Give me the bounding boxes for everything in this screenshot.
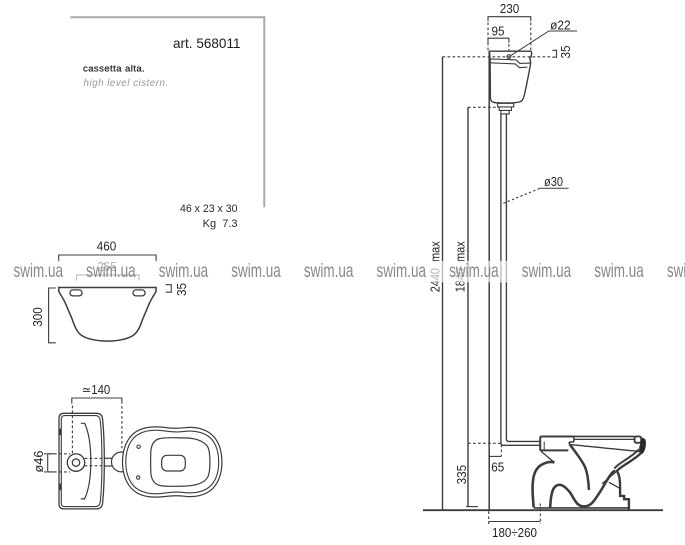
- svg-text:swim.ua: swim.ua: [522, 260, 572, 282]
- svg-text:35: 35: [559, 46, 573, 59]
- svg-text:swim.ua: swim.ua: [14, 260, 64, 282]
- svg-text:art. 568011: art. 568011: [173, 35, 241, 51]
- svg-text:swim.ua: swim.ua: [86, 260, 136, 282]
- svg-text:swim.ua: swim.ua: [449, 260, 499, 282]
- svg-text:Kg 7.3: Kg 7.3: [203, 218, 238, 230]
- svg-text:swim.ua: swim.ua: [231, 260, 281, 282]
- svg-text:swim.ua: swim.ua: [377, 260, 427, 282]
- svg-text:460: 460: [97, 240, 117, 254]
- svg-text:335: 335: [455, 465, 469, 485]
- svg-text:≃140: ≃140: [82, 383, 111, 397]
- svg-text:cassetta alta.: cassetta alta.: [83, 63, 145, 74]
- svg-text:high level cistern.: high level cistern.: [84, 78, 169, 89]
- svg-text:35: 35: [175, 283, 189, 296]
- svg-text:swim.ua: swim.ua: [304, 260, 354, 282]
- svg-text:46 x 23 x 30: 46 x 23 x 30: [180, 203, 238, 215]
- svg-text:230: 230: [500, 2, 520, 16]
- svg-text:ø30: ø30: [544, 175, 563, 189]
- svg-text:180÷260: 180÷260: [492, 526, 537, 540]
- svg-text:ø46: ø46: [32, 451, 46, 473]
- svg-text:swim.ua: swim.ua: [594, 260, 644, 282]
- svg-text:300: 300: [31, 307, 45, 327]
- svg-text:swim.ua: swim.ua: [159, 260, 209, 282]
- svg-text:65: 65: [491, 461, 504, 475]
- svg-text:95: 95: [492, 24, 505, 38]
- svg-text:swim.ua: swim.ua: [667, 260, 685, 282]
